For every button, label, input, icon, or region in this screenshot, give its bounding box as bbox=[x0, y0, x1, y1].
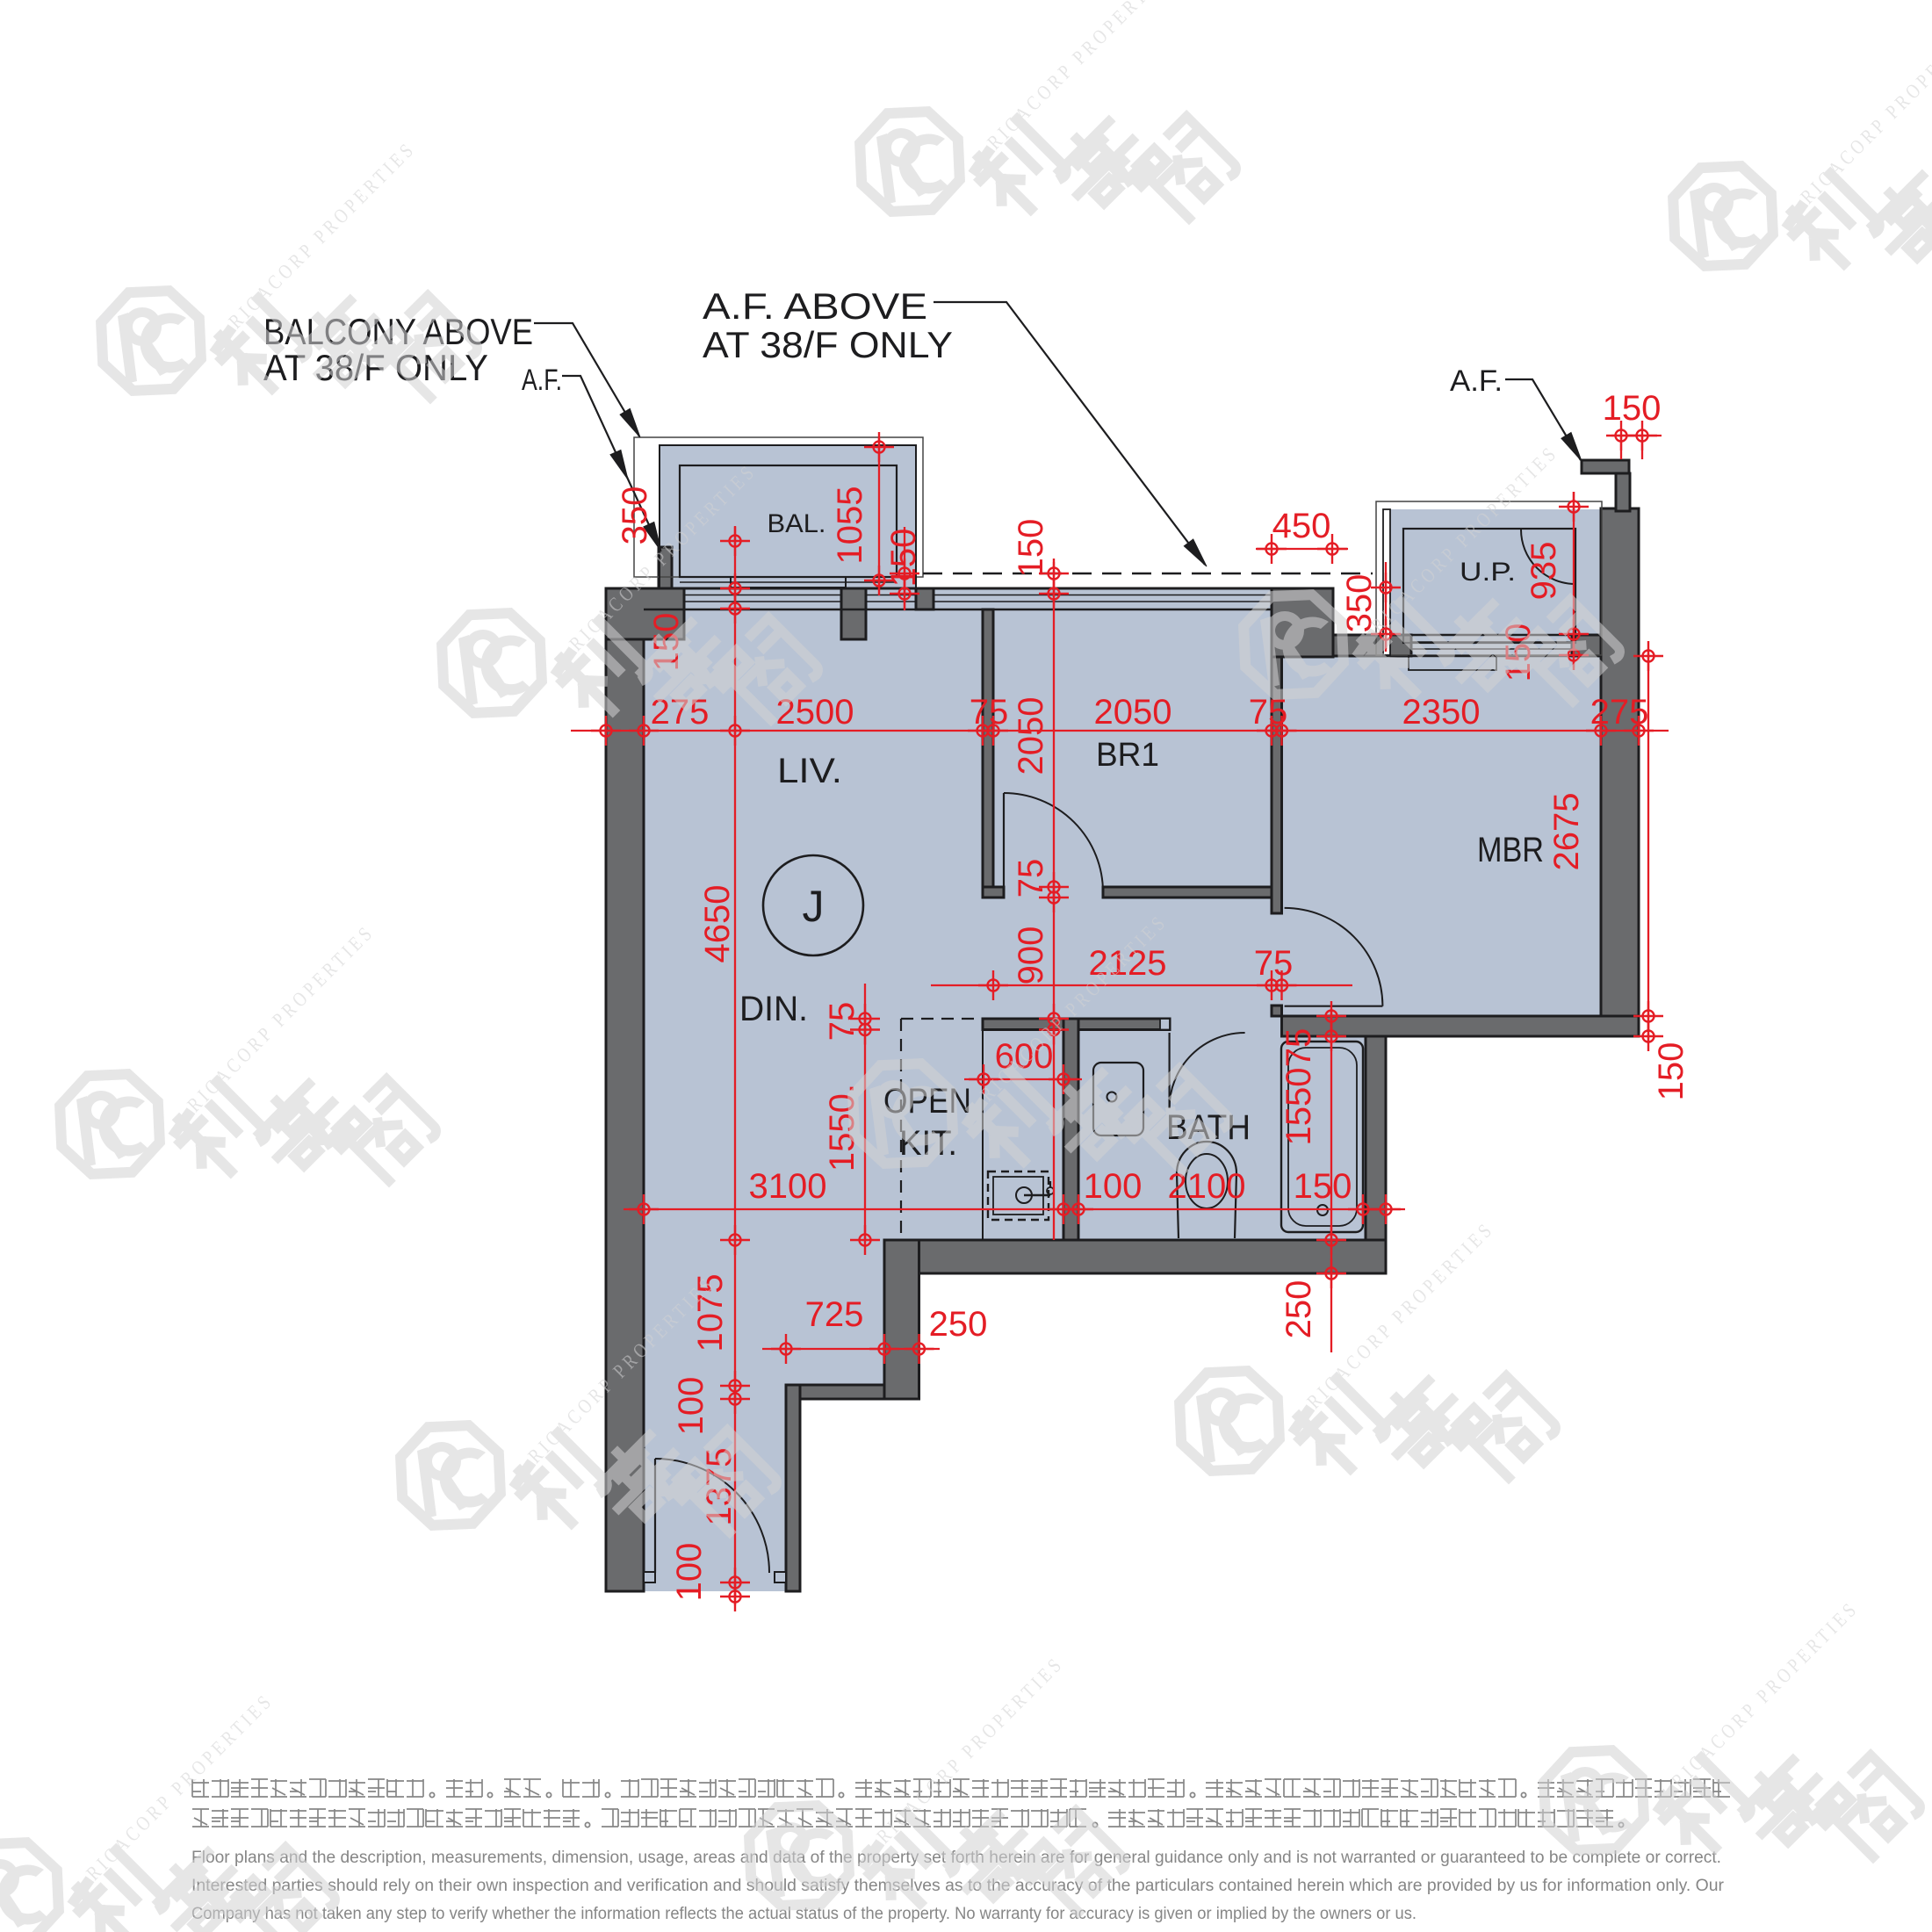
svg-text:250: 250 bbox=[1280, 1280, 1318, 1339]
svg-text:Interested parties should rely: Interested parties should rely on their … bbox=[191, 1877, 1725, 1895]
svg-text:A.F. ABOVE: A.F. ABOVE bbox=[703, 285, 927, 327]
svg-text:935: 935 bbox=[1525, 542, 1563, 601]
svg-text:U.P.: U.P. bbox=[1460, 558, 1516, 587]
svg-text:A.F.: A.F. bbox=[1450, 364, 1503, 398]
svg-text:725: 725 bbox=[805, 1295, 864, 1334]
svg-text:150: 150 bbox=[884, 529, 923, 588]
svg-text:900: 900 bbox=[1012, 926, 1050, 985]
svg-text:150: 150 bbox=[1012, 519, 1050, 578]
svg-text:75: 75 bbox=[1012, 859, 1050, 898]
svg-text:MBR: MBR bbox=[1477, 831, 1544, 869]
svg-text:DIN.: DIN. bbox=[739, 990, 808, 1028]
svg-text:BAL.: BAL. bbox=[768, 509, 826, 538]
svg-text:75: 75 bbox=[1280, 1028, 1318, 1068]
svg-text:150: 150 bbox=[1603, 389, 1662, 428]
svg-text:150: 150 bbox=[1652, 1042, 1690, 1101]
svg-text:250: 250 bbox=[929, 1305, 988, 1344]
svg-text:1550: 1550 bbox=[1280, 1068, 1318, 1146]
svg-text:100: 100 bbox=[670, 1543, 709, 1602]
svg-text:100: 100 bbox=[1084, 1167, 1143, 1206]
svg-text:J: J bbox=[803, 882, 825, 931]
svg-text:2050: 2050 bbox=[1094, 693, 1172, 732]
svg-text:1055: 1055 bbox=[831, 487, 869, 565]
svg-text:4650: 4650 bbox=[698, 885, 737, 963]
svg-text:100: 100 bbox=[672, 1377, 710, 1436]
svg-text:150: 150 bbox=[1294, 1167, 1352, 1206]
svg-text:75: 75 bbox=[970, 693, 1009, 732]
svg-text:AT 38/F ONLY: AT 38/F ONLY bbox=[703, 324, 953, 365]
svg-text:LIV.: LIV. bbox=[777, 752, 842, 790]
svg-text:75: 75 bbox=[1254, 944, 1294, 983]
svg-text:2050: 2050 bbox=[1012, 697, 1050, 775]
svg-text:275: 275 bbox=[1590, 693, 1649, 732]
svg-text:2675: 2675 bbox=[1547, 793, 1586, 871]
svg-text:BR1: BR1 bbox=[1096, 737, 1159, 774]
svg-text:3100: 3100 bbox=[749, 1167, 827, 1206]
svg-text:75: 75 bbox=[823, 1002, 861, 1042]
svg-text:350: 350 bbox=[616, 487, 654, 545]
svg-text:2350: 2350 bbox=[1402, 693, 1481, 732]
svg-text:450: 450 bbox=[1272, 507, 1331, 545]
svg-text:A.F.: A.F. bbox=[522, 364, 562, 397]
